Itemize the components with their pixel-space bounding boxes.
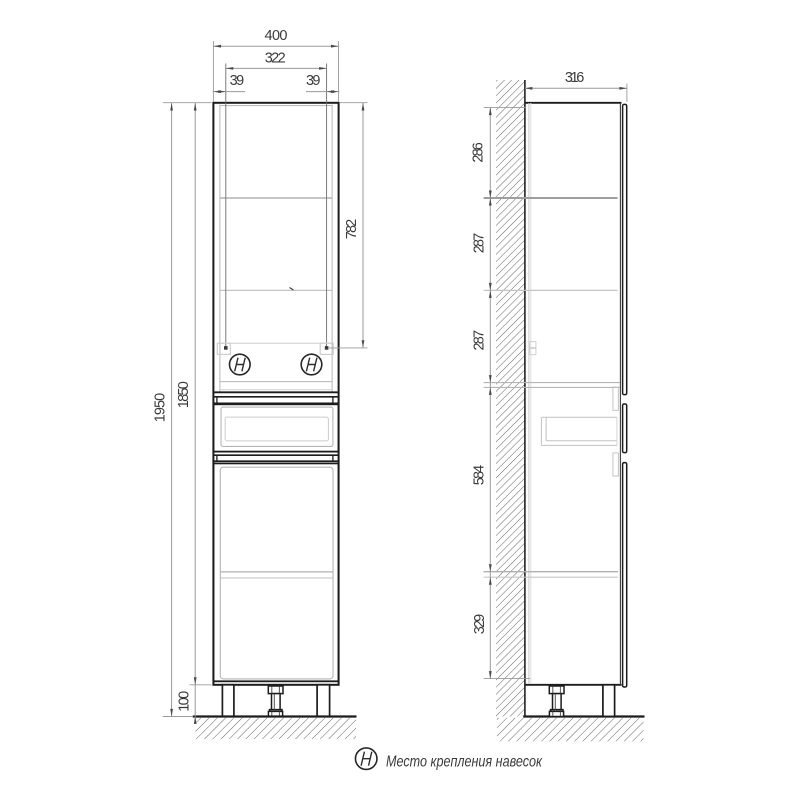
svg-text:316: 316 (565, 70, 585, 86)
svg-text:39: 39 (306, 73, 321, 89)
svg-text:287: 287 (471, 330, 487, 351)
svg-text:400: 400 (265, 28, 288, 44)
svg-text:322: 322 (265, 51, 286, 67)
svg-text:782: 782 (344, 219, 360, 240)
svg-text:1850: 1850 (176, 381, 192, 408)
svg-text:584: 584 (471, 465, 487, 486)
svg-text:100: 100 (177, 691, 193, 712)
svg-text:286: 286 (471, 142, 487, 163)
svg-text:Место крепления навесок: Место крепления навесок (386, 754, 543, 771)
svg-text:1950: 1950 (153, 393, 169, 423)
svg-text:287: 287 (471, 233, 487, 254)
svg-text:39: 39 (230, 73, 245, 89)
svg-text:329: 329 (472, 614, 488, 635)
